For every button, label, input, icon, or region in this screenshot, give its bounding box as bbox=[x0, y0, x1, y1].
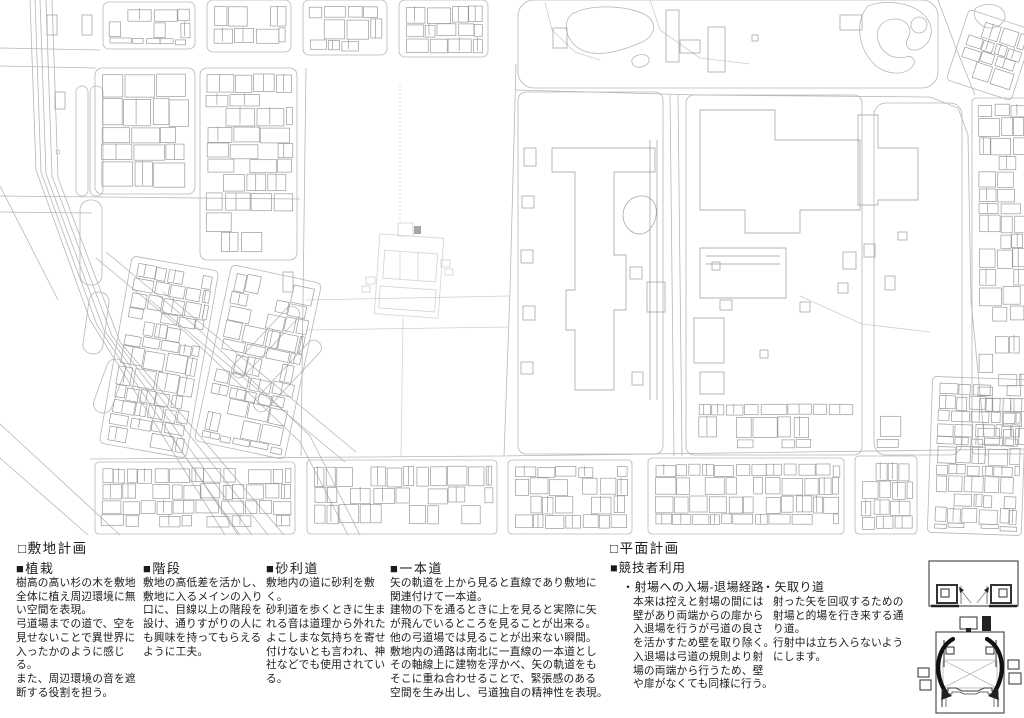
entry-exit-diagram bbox=[927, 559, 1021, 611]
presentation-board: □敷地計画 ■植栽 樹高の高い杉の木を敷地 全体に植え周辺環境に無 い空間を表現… bbox=[0, 0, 1024, 718]
site-map bbox=[0, 0, 1024, 540]
gravel-path-body: 敷地内の道に砂利を敷く。 砂利道を歩くときに生ま れる音は道理から外れた よこし… bbox=[266, 577, 396, 687]
single-road-body: 矢の軌道を上から見ると直線であり敷地に 関連付けて一本道。 建物の下を通るときに… bbox=[390, 577, 658, 700]
floor-plan-title: □平面計画 bbox=[610, 537, 680, 557]
gravel-path-heading: ■砂利道 bbox=[266, 558, 319, 577]
arrow-retrieval-heading: ・矢取り道 bbox=[762, 578, 825, 595]
planting-heading: ■植栽 bbox=[16, 558, 54, 577]
site-plan-title: □敷地計画 bbox=[18, 537, 88, 557]
stairs-heading: ■階段 bbox=[143, 558, 181, 577]
stairs-body: 敷地の高低差を活かし、 敷地に入るメインの入り 口に、目線以上の階段を 設け、通… bbox=[143, 577, 273, 659]
entry-exit-body: 本来は控えと射場の間には 壁があり両端からの扉から 入退場を行うが弓道の良さ を… bbox=[633, 596, 785, 692]
single-road-heading: ■一本道 bbox=[390, 558, 443, 577]
entry-exit-heading: ・射場への入場-退場経路 bbox=[622, 578, 764, 595]
arrow-retrieval-body: 射った矢を回収するための 射場と的場を行き来する通 り道。 行射中は立ち入らない… bbox=[773, 596, 928, 665]
athlete-use-heading: ■競技者利用 bbox=[610, 557, 686, 576]
circulation-diagram bbox=[916, 612, 1022, 716]
planting-body: 樹高の高い杉の木を敷地 全体に植え周辺環境に無 い空間を表現。 弓道場までの道で… bbox=[16, 577, 146, 700]
